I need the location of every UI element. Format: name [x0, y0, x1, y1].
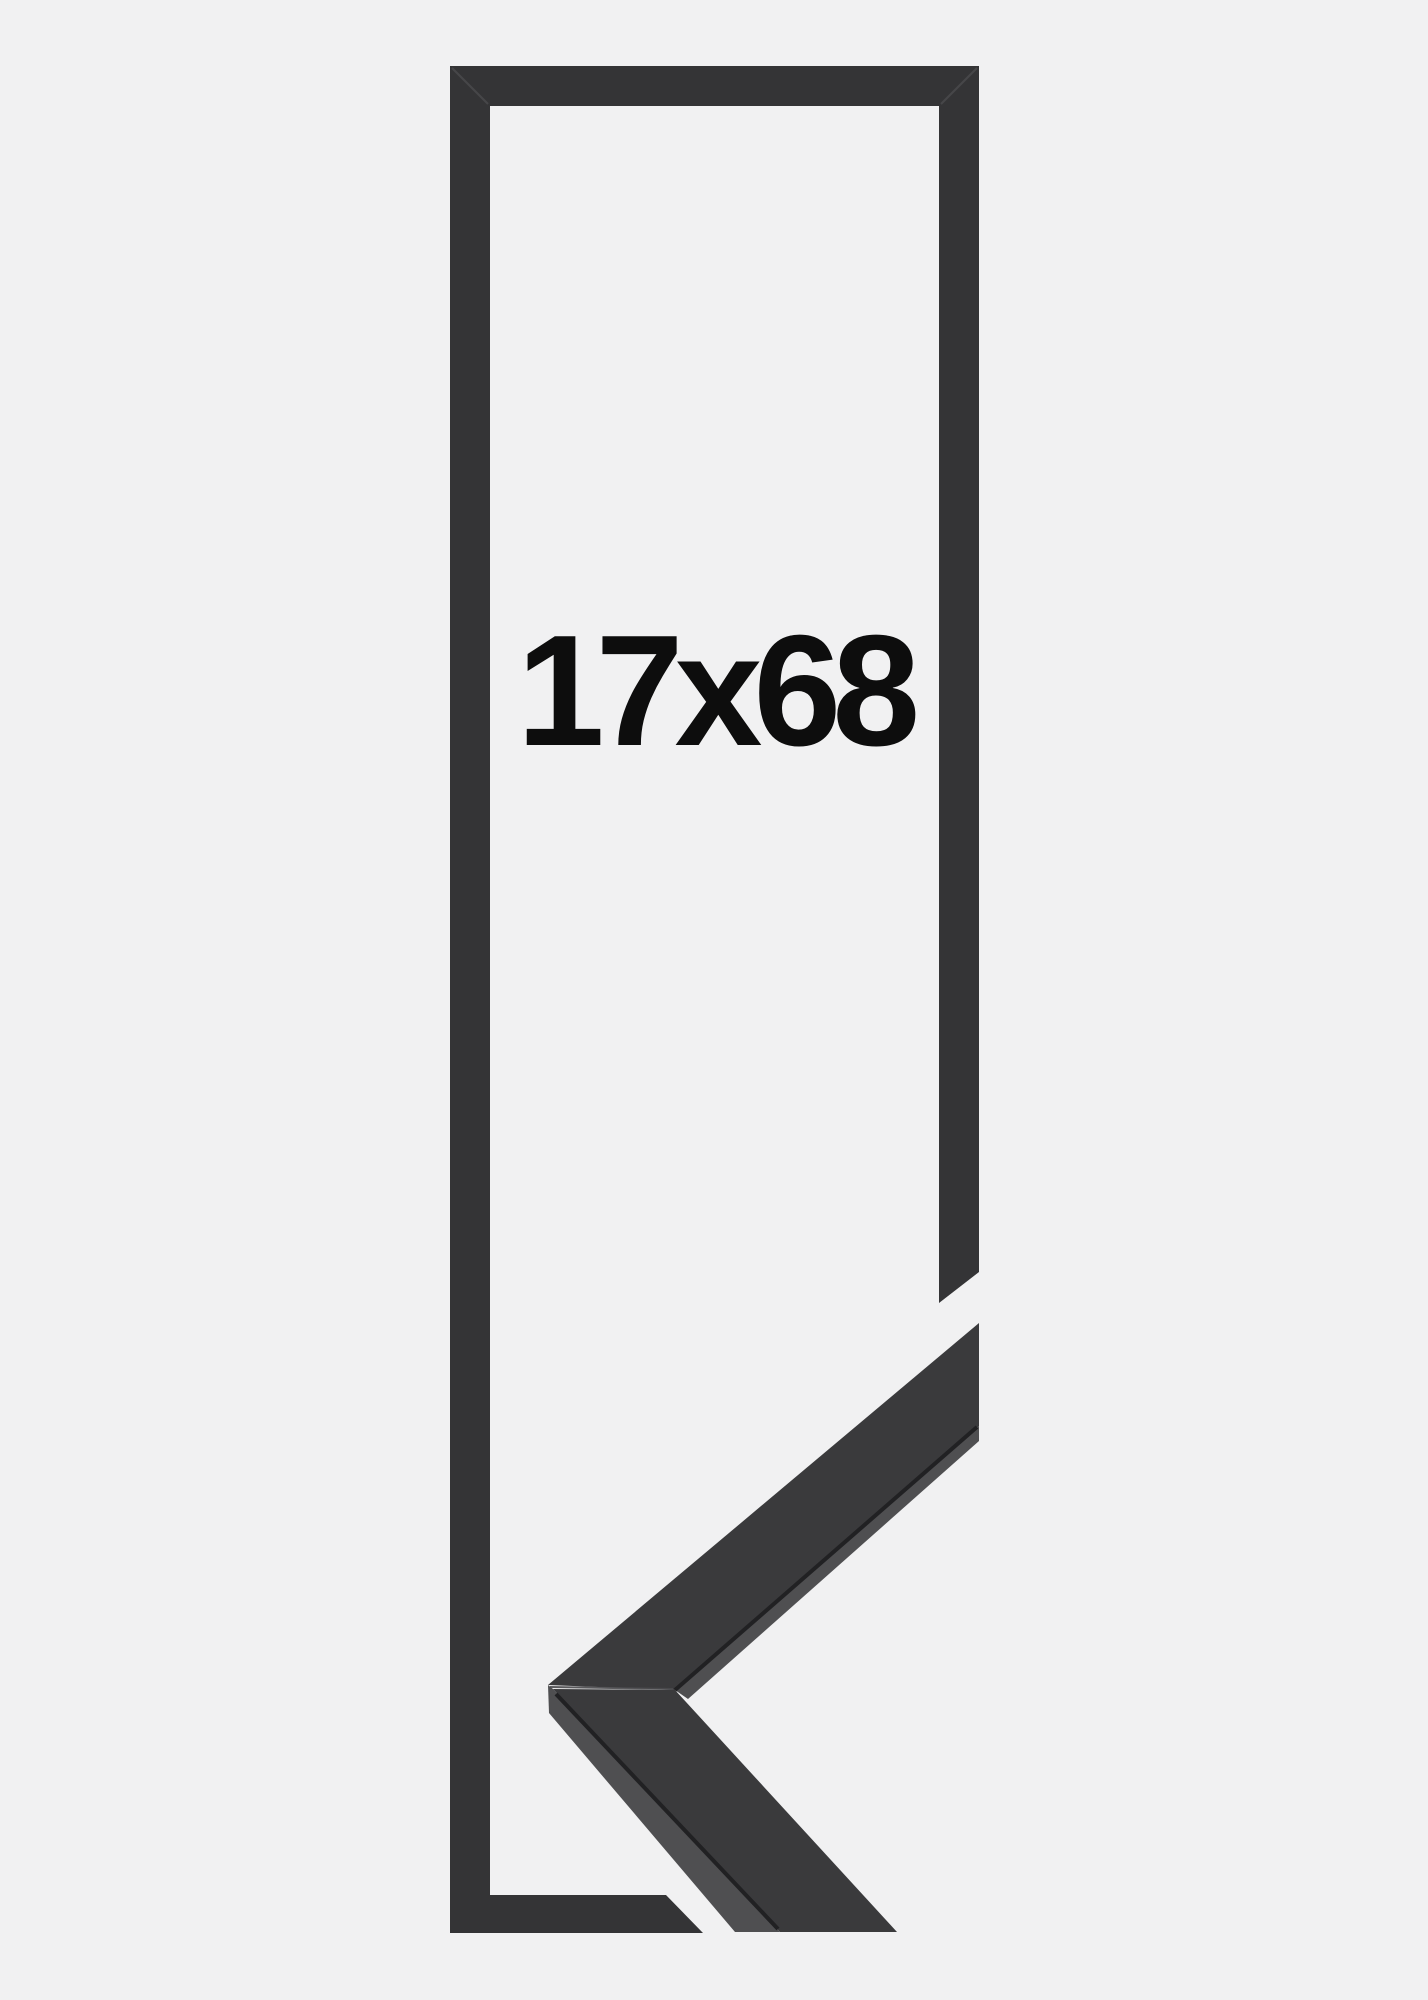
size-label: 17x68	[517, 603, 916, 779]
frame-illustration-canvas: 17x68	[0, 0, 1428, 2000]
product-size-illustration: 17x68	[0, 0, 1428, 2000]
background	[0, 0, 1428, 2000]
